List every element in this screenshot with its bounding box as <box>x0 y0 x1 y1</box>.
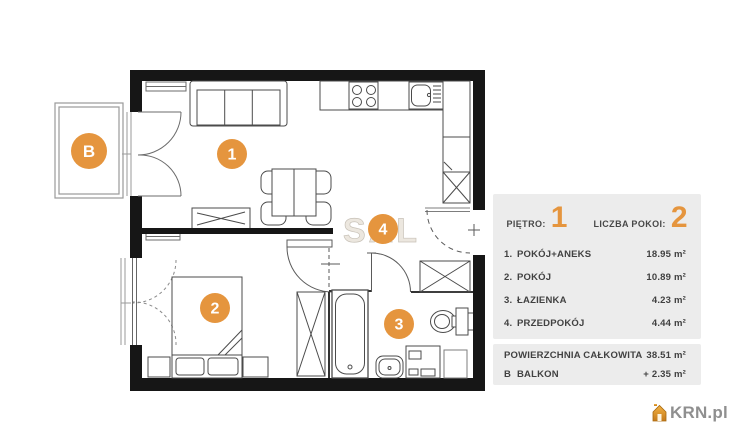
bathroom-door <box>367 253 411 292</box>
balcony-row-label: BALKON <box>517 369 559 380</box>
rooms-count-label: LICZBA POKOI: <box>593 219 665 229</box>
room-row-area: 4.44 m² <box>652 318 686 329</box>
interior-wall <box>130 228 333 234</box>
floor-value: 1 <box>551 204 568 231</box>
bed <box>172 277 242 378</box>
room-row-name: POKÓJ <box>517 272 551 283</box>
bedroom-wardrobe <box>297 292 325 376</box>
room-row-number: 3. <box>504 295 517 306</box>
room-row-area: 4.23 m² <box>652 295 686 306</box>
balcony-row-letter: B <box>504 369 517 380</box>
floorplan-image: SAL 1 2 3 4 B <box>0 0 740 440</box>
room-row: 3. ŁAZIENKA 4.23 m² <box>504 295 686 306</box>
entry-door <box>427 210 480 253</box>
kitchen-counter <box>320 81 470 137</box>
room-2-marker: 2 <box>200 293 230 323</box>
total-area-value: 38.51 m² <box>646 350 686 361</box>
sofa <box>190 81 287 126</box>
room-row-number: 1. <box>504 249 517 260</box>
room-list: 1. POKÓJ+ANEKS 18.95 m² 2. POKÓJ 10.89 m… <box>493 249 701 329</box>
logo-text: KRN.pl <box>670 403 728 423</box>
entry-shelf <box>425 208 470 212</box>
room-row-name: POKÓJ+ANEKS <box>517 249 591 260</box>
toilet <box>431 308 474 335</box>
room-row: 4. PRZEDPOKÓJ 4.44 m² <box>504 318 686 329</box>
rooms-count-group: LICZBA POKOI: 2 <box>593 204 687 231</box>
radiator <box>146 82 186 91</box>
panel-header: PIĘTRO: 1 LICZBA POKOI: 2 <box>493 194 701 231</box>
room-3-marker: 3 <box>384 309 414 339</box>
radiator <box>146 233 180 240</box>
krn-logo: KRN.pl <box>651 402 728 423</box>
room-4-marker: 4 <box>368 214 398 244</box>
summary-panel: POWIERZCHNIA CAŁKOWITA 38.51 m² B BALKON… <box>493 344 701 385</box>
bathtub <box>332 290 368 378</box>
balcony-row-value: + 2.35 m² <box>643 369 686 380</box>
room-row: 2. POKÓJ 10.89 m² <box>504 272 686 283</box>
balcony-marker: B <box>71 133 107 169</box>
washing-machine <box>406 346 440 378</box>
room-1-marker: 1 <box>217 139 247 169</box>
fridge <box>443 137 470 172</box>
room-row: 1. POKÓJ+ANEKS 18.95 m² <box>504 249 686 260</box>
bedroom-door <box>287 240 340 292</box>
room-4-number: 4 <box>379 222 388 239</box>
balcony-area-row: B BALKON + 2.35 m² <box>504 369 686 380</box>
room-row-area: 10.89 m² <box>646 272 686 283</box>
room-row-number: 2. <box>504 272 517 283</box>
room-row-name: PRZEDPOKÓJ <box>517 318 584 329</box>
hallway-wardrobe <box>420 261 470 292</box>
rooms-count-value: 2 <box>671 204 688 231</box>
balcony-door <box>138 112 181 196</box>
info-panel: PIĘTRO: 1 LICZBA POKOI: 2 1. POKÓJ+ANEKS… <box>493 194 701 339</box>
tv-sideboard <box>192 208 250 230</box>
bedroom-window <box>121 258 176 345</box>
room-3-number: 3 <box>395 317 404 334</box>
floor-label: PIĘTRO: <box>506 219 545 229</box>
house-icon <box>651 402 668 423</box>
bathroom-cabinet <box>444 350 467 378</box>
floor-group: PIĘTRO: 1 <box>506 204 567 231</box>
total-area-label: POWIERZCHNIA CAŁKOWITA <box>504 350 642 361</box>
kitchen-cabinet <box>443 172 470 203</box>
balcony-letter: B <box>83 142 95 161</box>
room-2-number: 2 <box>211 301 220 318</box>
dining-table-chairs <box>261 169 331 225</box>
bathroom-sink <box>376 356 403 378</box>
room-1-number: 1 <box>228 147 237 164</box>
room-row-number: 4. <box>504 318 517 329</box>
total-area-row: POWIERZCHNIA CAŁKOWITA 38.51 m² <box>504 350 686 361</box>
room-row-area: 18.95 m² <box>646 249 686 260</box>
room-row-name: ŁAZIENKA <box>517 295 567 306</box>
